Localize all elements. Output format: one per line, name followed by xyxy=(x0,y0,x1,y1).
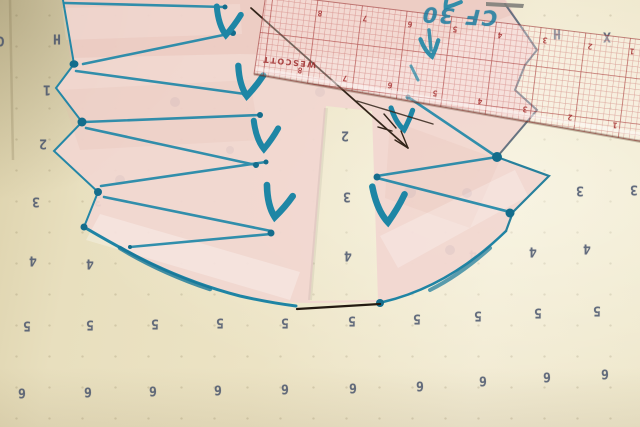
photo-artwork xyxy=(0,0,640,427)
paper-crease xyxy=(10,0,13,160)
handwritten-annotation: CF 30 xyxy=(420,2,497,30)
photo-sewing-pattern-slash-and-spread: CH1233445555555555666666666623433444HX xyxy=(0,0,640,427)
